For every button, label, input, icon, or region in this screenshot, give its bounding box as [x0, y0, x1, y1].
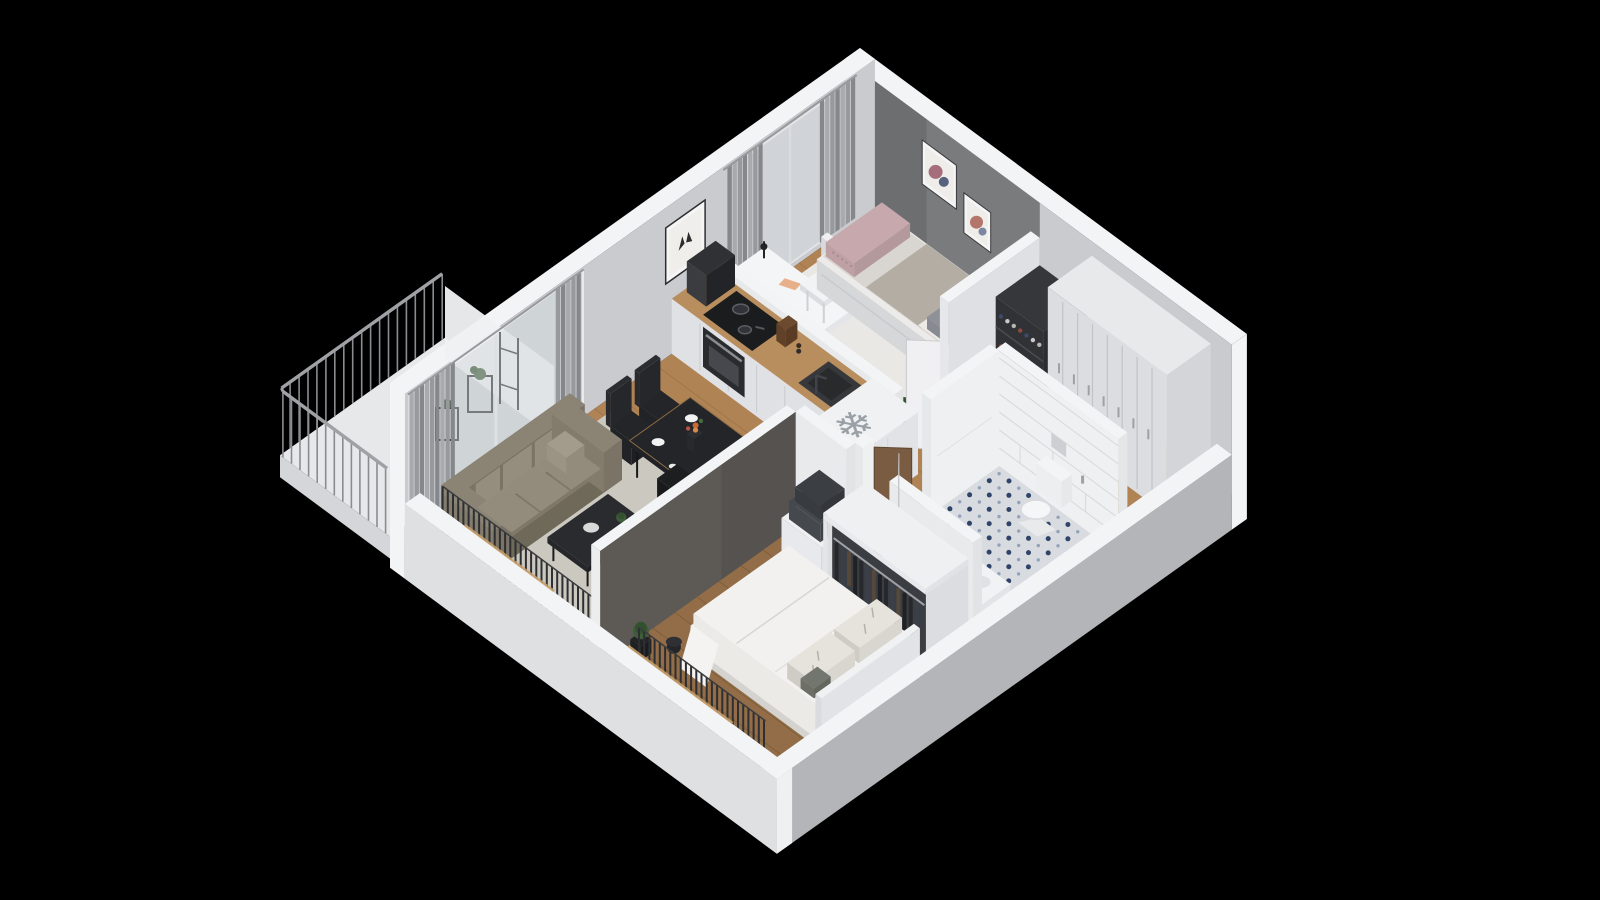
apartment-3d-floorplan: ❄: [0, 0, 1600, 900]
canvas-background: ❄: [0, 0, 1600, 900]
